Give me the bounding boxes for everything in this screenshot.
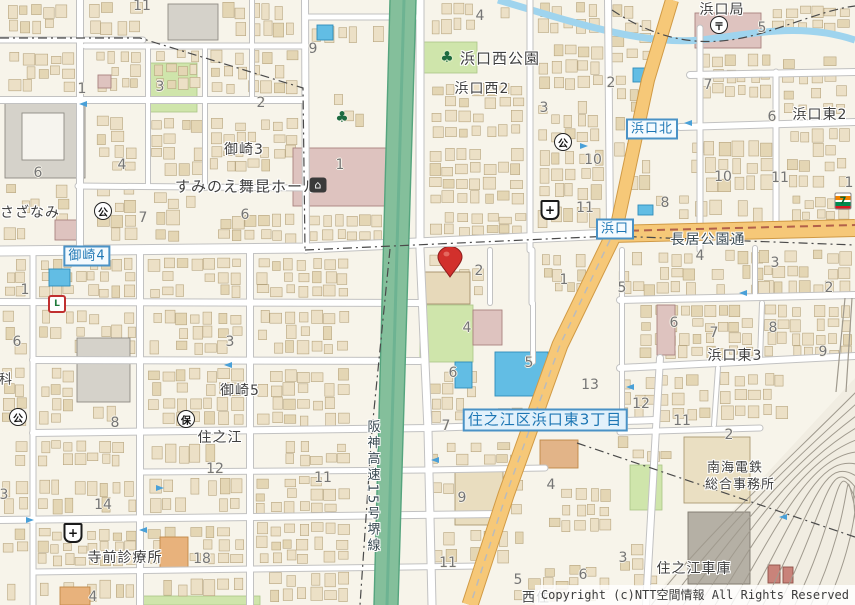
location-pin-marker[interactable] — [437, 247, 463, 282]
map-canvas[interactable] — [0, 0, 855, 605]
copyright-attribution: Copyright (c)NTT空間情報 All Rights Reserved — [535, 585, 855, 605]
map-viewport[interactable]: 浜口西公園浜口西2浜口局浜口東2御崎3すみのえ舞昆ホールさざなみ御崎5住之江浜口… — [0, 0, 855, 605]
